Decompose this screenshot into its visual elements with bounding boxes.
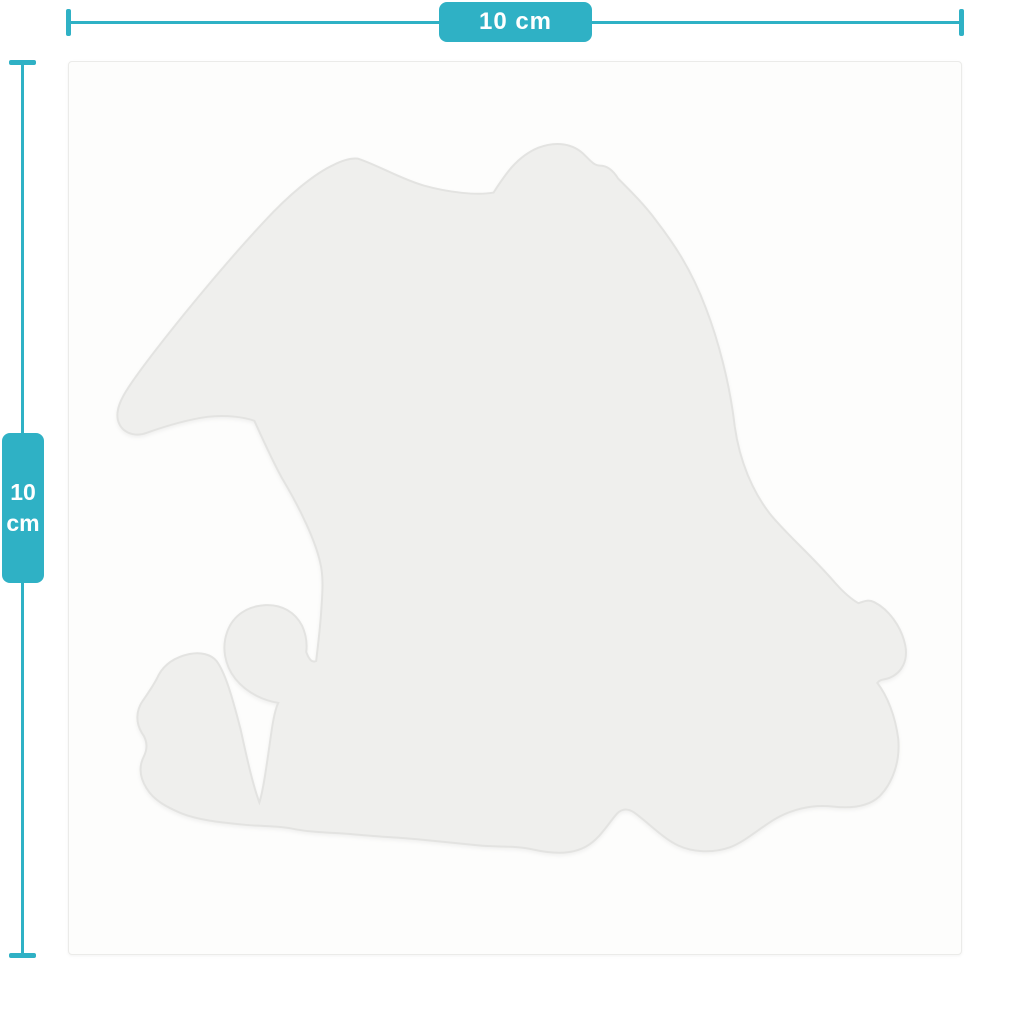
die-cut-sticker-silhouette — [117, 144, 906, 853]
horizontal-dimension-text: 10 cm — [479, 8, 552, 36]
vertical-dimension-unit: cm — [6, 508, 39, 539]
vertical-ruler-cap-bottom — [9, 953, 36, 958]
vertical-dimension-value: 10 — [10, 477, 36, 508]
vertical-ruler-cap-top — [9, 60, 36, 65]
horizontal-ruler-cap-left — [66, 9, 71, 36]
horizontal-dimension-label: 10 cm — [439, 2, 592, 42]
sticker-canvas — [68, 61, 962, 955]
horizontal-ruler-cap-right — [959, 9, 964, 36]
sticker-silhouette-svg — [69, 62, 961, 954]
vertical-dimension-label: 10 cm — [2, 433, 44, 583]
sticker-size-mockup: 10 cm 10 cm — [0, 0, 1024, 1024]
